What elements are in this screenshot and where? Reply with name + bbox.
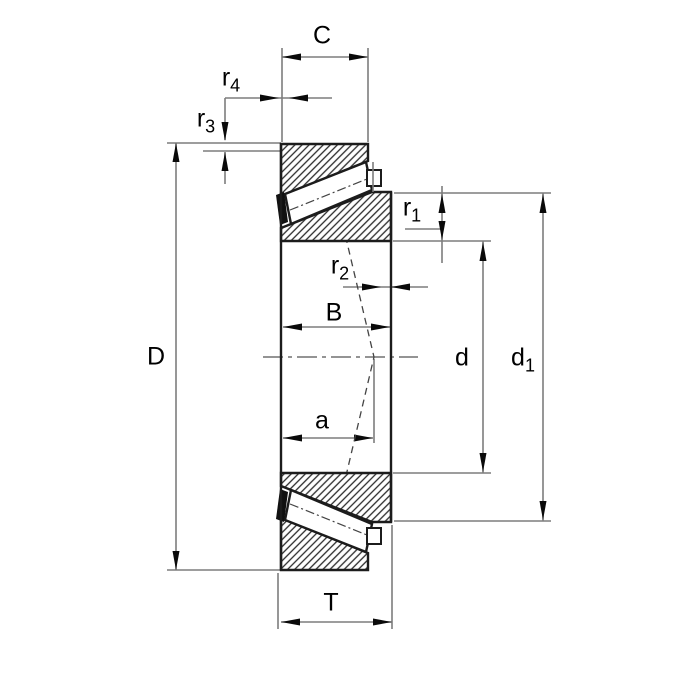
cage-bottom-right	[367, 528, 381, 544]
label-dim-T: T	[323, 591, 338, 616]
label-dim-D: D	[147, 345, 165, 370]
label-dim-d1: d1	[511, 346, 535, 375]
label-dim-r2: r2	[331, 254, 349, 283]
label-dim-d: d	[455, 346, 469, 371]
label-dim-C: C	[313, 24, 331, 49]
label-dim-B: B	[326, 301, 343, 326]
label-dim-r4: r4	[222, 66, 240, 95]
bearing-dimension-diagram: C r4 r3 r1 r2 B D a d d1 T	[0, 0, 680, 680]
cage-top-right	[367, 170, 381, 186]
label-dim-r1: r1	[403, 196, 421, 225]
bearing-section-top	[276, 144, 391, 241]
bearing-diagram-canvas	[0, 0, 680, 680]
bearing-section-bottom	[276, 473, 391, 570]
label-dim-a: a	[315, 409, 329, 434]
label-dim-r3: r3	[197, 107, 215, 136]
